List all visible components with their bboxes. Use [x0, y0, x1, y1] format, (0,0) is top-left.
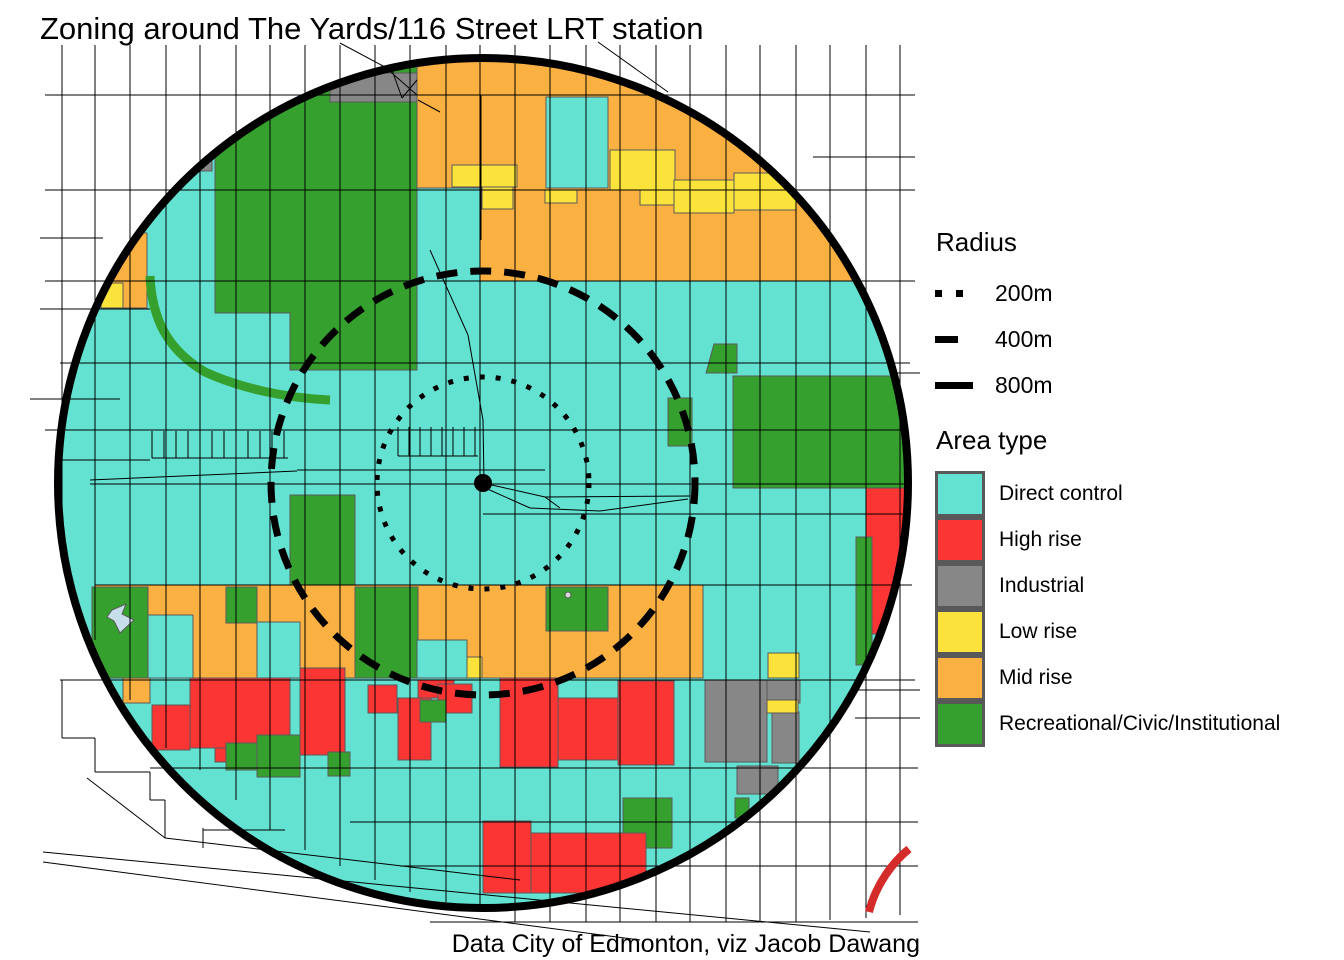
radius-item-label: 400m [995, 326, 1053, 353]
radius-item-200m: 200m [935, 270, 1335, 316]
area-type-item-label: Mid rise [999, 666, 1073, 690]
radius-item-label: 200m [995, 280, 1053, 307]
radius-item-400m: 400m [935, 316, 1335, 362]
color-swatch-dc [935, 471, 985, 517]
area-type-item-ind: Industrial [935, 563, 1335, 609]
radius-legend-title: Radius [936, 227, 1335, 258]
area-type-item-mr: Mid rise [935, 655, 1335, 701]
area-type-item-label: Low rise [999, 620, 1077, 644]
area-type-item-label: Recreational/Civic/Institutional [999, 712, 1280, 736]
area-type-legend: Area type Direct controlHigh riseIndustr… [935, 425, 1335, 747]
radius-item-800m: 800m [935, 362, 1335, 408]
lrt-track-line [869, 849, 909, 912]
map-legend: Radius 200m400m800m Area type Direct con… [935, 227, 1335, 747]
radius-legend-items: 200m400m800m [935, 270, 1335, 408]
radius-legend: Radius 200m400m800m [935, 227, 1335, 408]
radius-line-sample-solid [935, 382, 993, 389]
radius-line-sample-dotted [935, 290, 993, 297]
station-dot [474, 474, 492, 492]
color-swatch-lr [935, 609, 985, 655]
color-swatch-ind [935, 563, 985, 609]
page-title: Zoning around The Yards/116 Street LRT s… [40, 11, 704, 47]
data-credit: Data City of Edmonton, viz Jacob Dawang [452, 930, 920, 959]
area-type-item-label: Direct control [999, 482, 1123, 506]
zoning-map-page: Zoning around The Yards/116 Street LRT s… [0, 0, 1344, 960]
color-swatch-rec [935, 701, 985, 747]
radius-line-sample-dashed [935, 336, 993, 343]
area-type-item-rec: Recreational/Civic/Institutional [935, 701, 1335, 747]
area-type-item-dc: Direct control [935, 471, 1335, 517]
area-type-item-hr: High rise [935, 517, 1335, 563]
area-type-item-lr: Low rise [935, 609, 1335, 655]
area-type-item-label: High rise [999, 528, 1082, 552]
area-type-legend-title: Area type [936, 425, 1335, 456]
area-type-item-label: Industrial [999, 574, 1084, 598]
area-type-legend-items: Direct controlHigh riseIndustrialLow ris… [935, 471, 1335, 747]
color-swatch-mr [935, 655, 985, 701]
radius-item-label: 800m [995, 372, 1053, 399]
color-swatch-hr [935, 517, 985, 563]
